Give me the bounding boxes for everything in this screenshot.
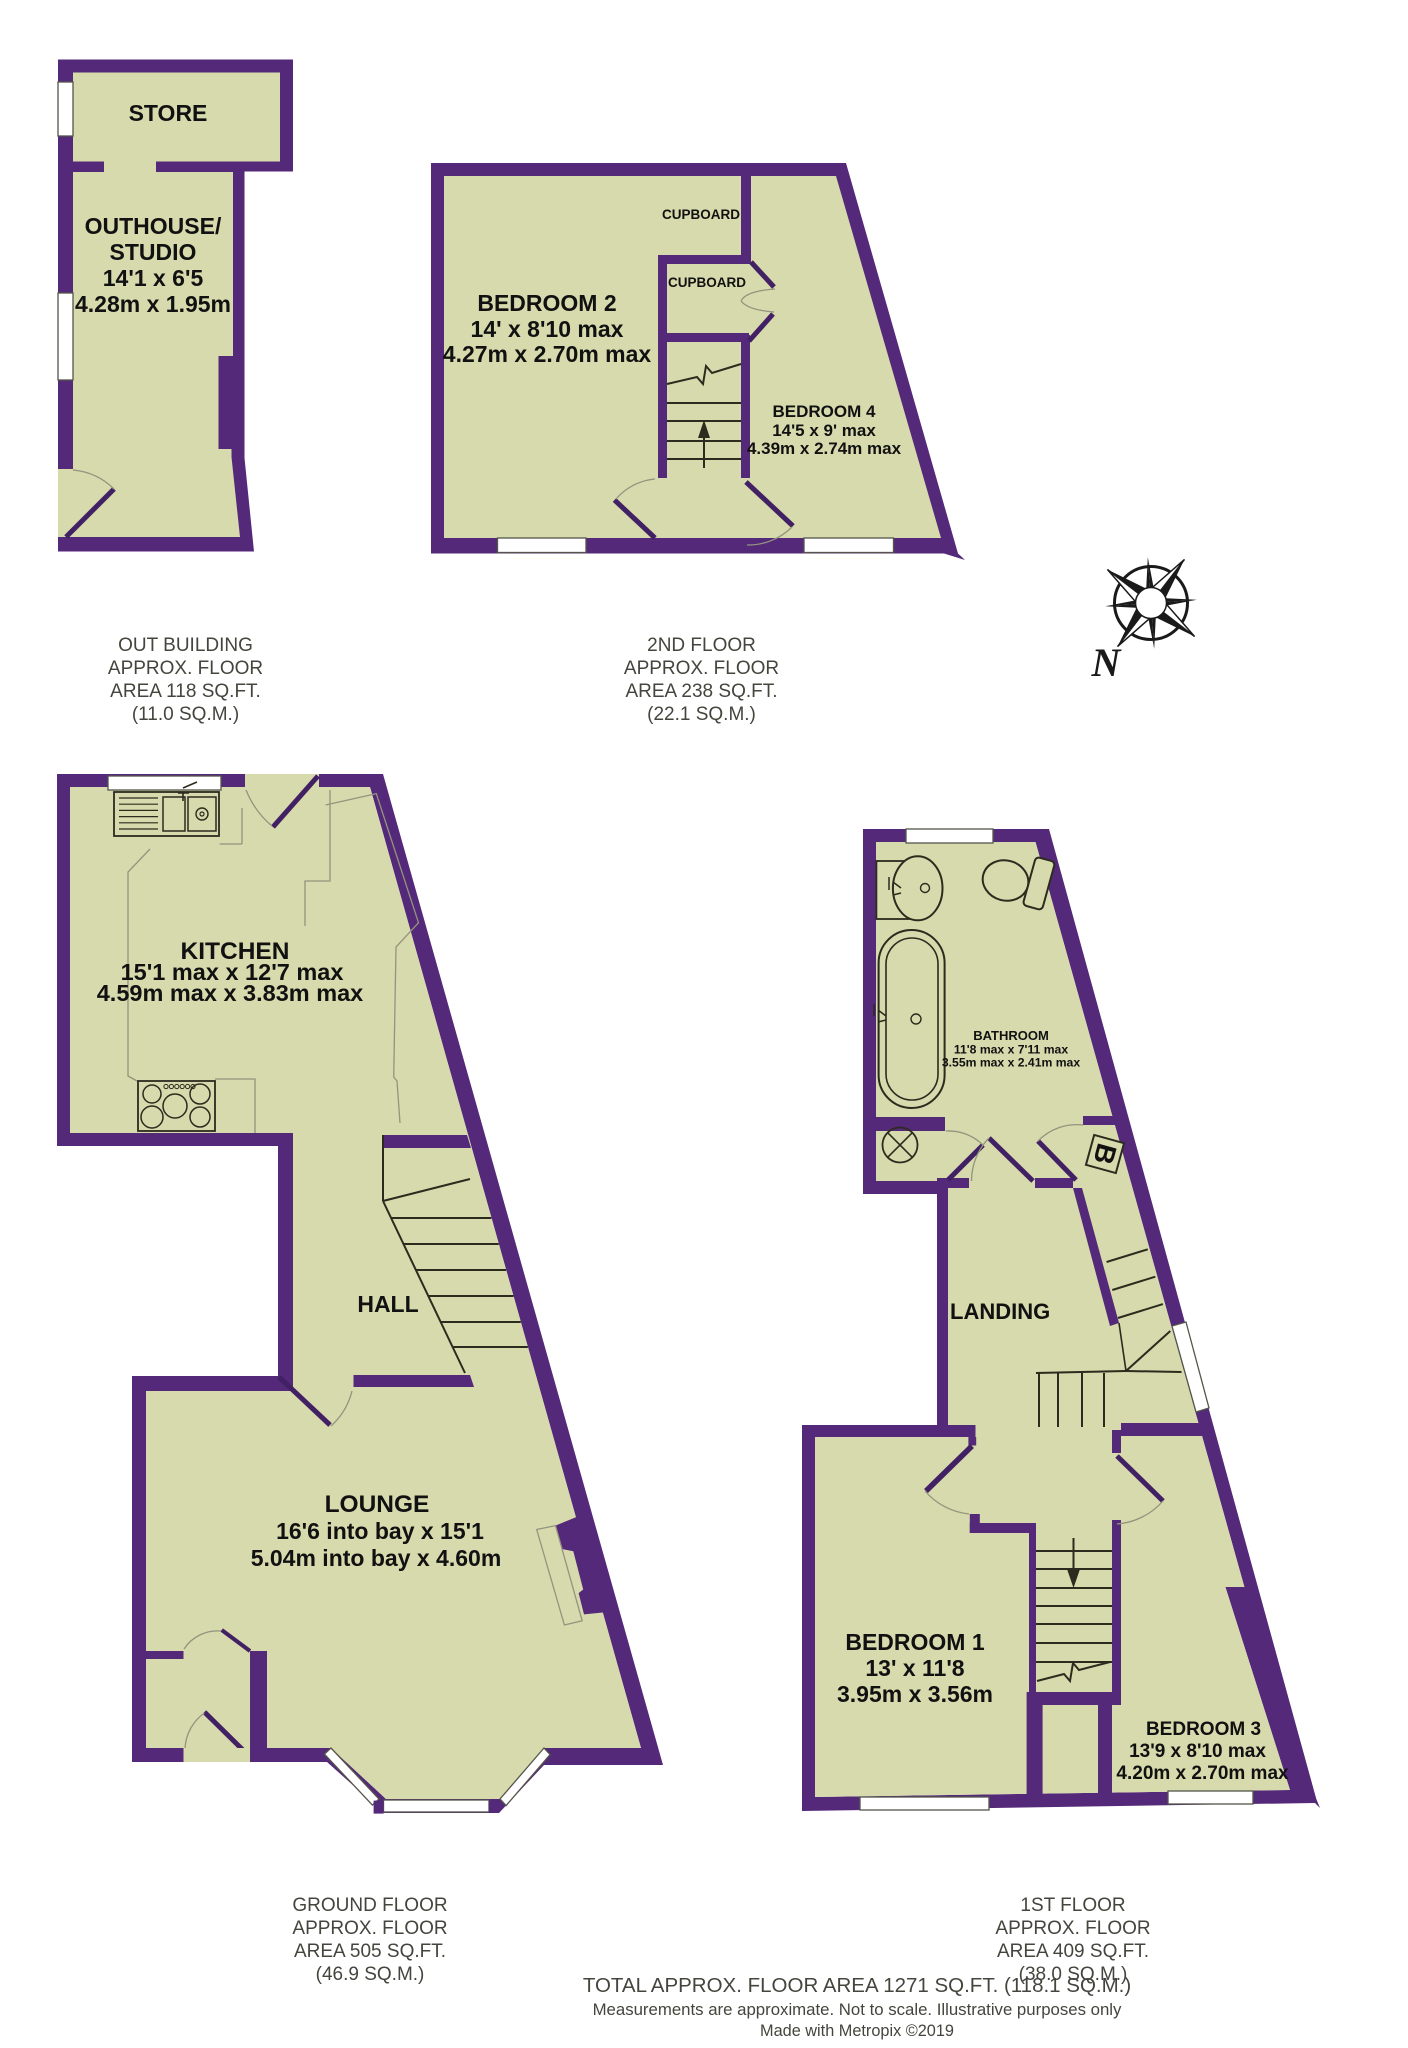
svg-text:1ST FLOOR: 1ST FLOOR — [1020, 1895, 1125, 1916]
svg-text:5.04m into bay x 4.60m: 5.04m into bay x 4.60m — [251, 1545, 502, 1571]
svg-text:AREA 238 SQ.FT.: AREA 238 SQ.FT. — [625, 681, 777, 702]
svg-text:APPROX. FLOOR: APPROX. FLOOR — [995, 1918, 1150, 1939]
svg-text:BATHROOM: BATHROOM — [973, 1028, 1049, 1043]
svg-text:BEDROOM 2: BEDROOM 2 — [477, 290, 616, 316]
svg-text:LOUNGE: LOUNGE — [325, 1491, 430, 1518]
svg-text:BEDROOM 4: BEDROOM 4 — [773, 402, 877, 421]
svg-text:CUPBOARD: CUPBOARD — [668, 275, 746, 290]
svg-text:11'8 max x 7'11 max: 11'8 max x 7'11 max — [954, 1043, 1068, 1057]
svg-text:4.59m max x 3.83m max: 4.59m max x 3.83m max — [97, 980, 364, 1006]
svg-text:3.95m x 3.56m: 3.95m x 3.56m — [837, 1681, 993, 1707]
svg-text:(46.9 SQ.M.): (46.9 SQ.M.) — [316, 1964, 425, 1985]
svg-text:STORE: STORE — [129, 100, 208, 126]
svg-text:13'9 x 8'10 max: 13'9 x 8'10 max — [1129, 1741, 1266, 1762]
svg-text:(22.1 SQ.M.): (22.1 SQ.M.) — [647, 704, 756, 725]
svg-text:14'5 x 9' max: 14'5 x 9' max — [772, 421, 876, 440]
svg-text:AREA 409 SQ.FT.: AREA 409 SQ.FT. — [997, 1941, 1149, 1962]
svg-text:LANDING: LANDING — [950, 1299, 1050, 1324]
svg-text:OUTHOUSE/: OUTHOUSE/ — [85, 213, 222, 239]
svg-text:Made with Metropix ©2019: Made with Metropix ©2019 — [760, 2022, 954, 2040]
svg-text:3.55m max x 2.41m max: 3.55m max x 2.41m max — [942, 1056, 1080, 1070]
svg-text:14'1 x 6'5: 14'1 x 6'5 — [103, 265, 204, 291]
svg-text:4.39m x 2.74m max: 4.39m x 2.74m max — [747, 439, 902, 458]
svg-text:AREA 118 SQ.FT.: AREA 118 SQ.FT. — [110, 681, 261, 702]
svg-text:4.27m x 2.70m max: 4.27m x 2.70m max — [443, 341, 652, 367]
svg-text:2ND FLOOR: 2ND FLOOR — [647, 635, 756, 656]
svg-text:16'6 into bay x 15'1: 16'6 into bay x 15'1 — [276, 1518, 484, 1544]
svg-text:14' x 8'10 max: 14' x 8'10 max — [471, 316, 624, 342]
svg-text:CUPBOARD: CUPBOARD — [662, 207, 740, 222]
svg-text:13' x 11'8: 13' x 11'8 — [865, 1655, 964, 1681]
svg-text:AREA 505 SQ.FT.: AREA 505 SQ.FT. — [294, 1941, 446, 1962]
svg-text:BEDROOM 1: BEDROOM 1 — [845, 1629, 985, 1655]
svg-text:4.28m x 1.95m: 4.28m x 1.95m — [75, 291, 231, 317]
svg-text:4.20m x 2.70m max: 4.20m x 2.70m max — [1116, 1763, 1289, 1784]
svg-text:N: N — [1091, 640, 1123, 685]
svg-text:APPROX. FLOOR: APPROX. FLOOR — [624, 658, 779, 679]
svg-text:TOTAL APPROX. FLOOR AREA 1271: TOTAL APPROX. FLOOR AREA 1271 SQ.FT. (11… — [583, 1974, 1131, 1997]
svg-text:GROUND FLOOR: GROUND FLOOR — [292, 1895, 447, 1916]
svg-text:HALL: HALL — [357, 1291, 418, 1317]
svg-text:OUT BUILDING: OUT BUILDING — [118, 635, 253, 656]
svg-text:APPROX. FLOOR: APPROX. FLOOR — [108, 658, 263, 679]
svg-text:STUDIO: STUDIO — [110, 239, 197, 265]
svg-text:(11.0 SQ.M.): (11.0 SQ.M.) — [132, 704, 239, 725]
svg-text:BEDROOM 3: BEDROOM 3 — [1146, 1719, 1261, 1740]
svg-text:Measurements are approximate.: Measurements are approximate. Not to sca… — [593, 2000, 1122, 2019]
svg-text:APPROX. FLOOR: APPROX. FLOOR — [292, 1918, 447, 1939]
